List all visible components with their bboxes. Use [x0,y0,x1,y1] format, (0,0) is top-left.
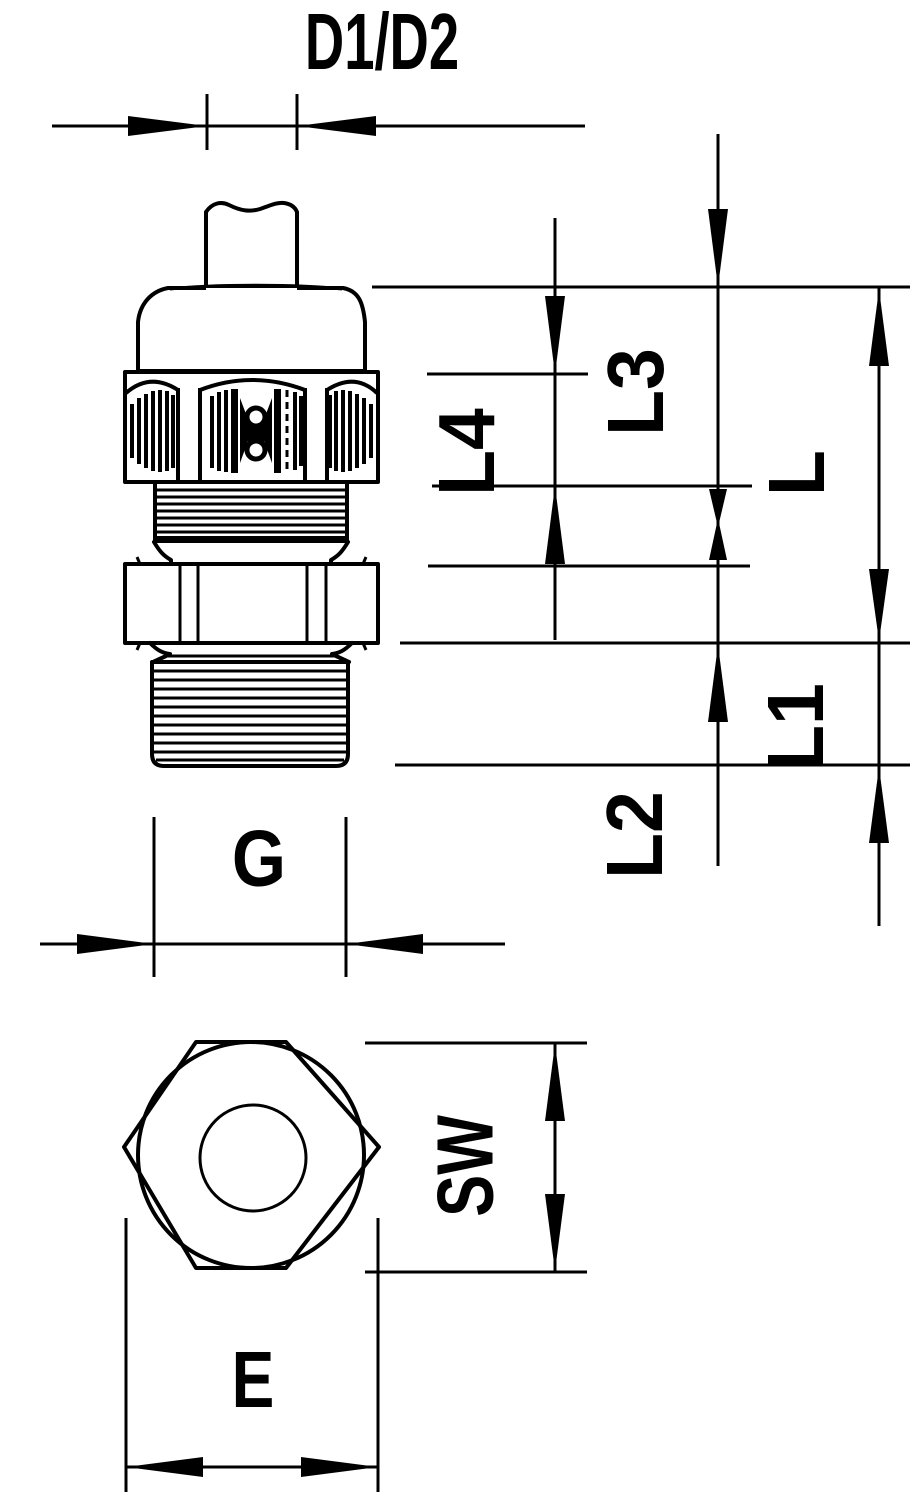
drawing-page: D1/D2 L4 L3 L2 [0,0,912,1500]
hexagon-outline [124,1042,379,1268]
technical-drawing: D1/D2 L4 L3 L2 [0,0,912,1500]
dim-sw: SW [365,1043,587,1272]
knurled-hex-nut [125,372,378,482]
bottom-view [124,1042,379,1268]
lower-neck [150,643,352,662]
double-arrowhead [709,489,727,560]
dim-label-e: E [232,1335,275,1424]
dim-label-l: L [753,450,842,496]
middle-hex-nut [125,557,378,650]
dim-label-sw: SW [422,1115,511,1217]
upper-neck [154,542,348,564]
dim-label-l2: L2 [591,791,680,879]
dim-label-l1: L1 [752,683,841,771]
dim-label-g: G [232,813,286,903]
dim-l-l1: L L1 [752,288,889,926]
dim-label-d1d2: D1/D2 [305,0,459,86]
dim-l3: L3 L2 [591,134,728,879]
side-view [125,203,378,766]
dim-label-l4: L4 [423,408,512,496]
cable-break [206,203,297,288]
dim-label-l3: L3 [592,348,681,436]
knurl-right [330,390,371,472]
lower-thread [152,662,348,766]
dome-cap [138,285,365,371]
upper-thread [155,482,347,541]
dim-l4: L4 [423,218,565,640]
dim-d1d2: D1/D2 [52,0,585,150]
dim-g: G [40,813,505,977]
knurl-left [132,390,173,472]
